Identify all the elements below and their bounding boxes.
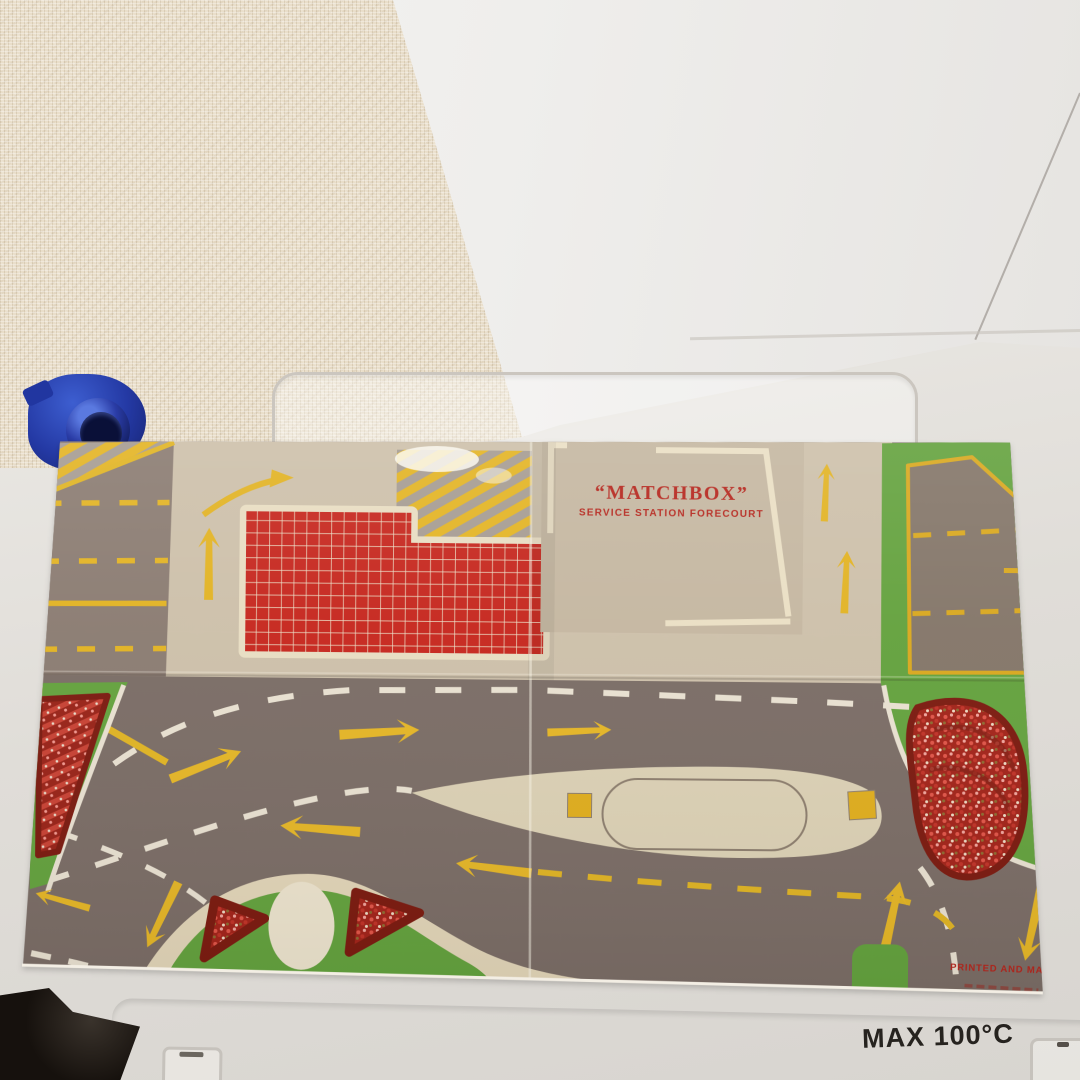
latch-notch — [179, 1052, 203, 1057]
lighting-overlay — [17, 431, 1050, 1001]
tray-latch-left — [161, 1046, 222, 1080]
matchbox-playmat: “MATCHBOX” SERVICE STATION FORECOURT — [17, 431, 1050, 1001]
photo-scene: MAX 100°C — [0, 0, 1080, 1080]
